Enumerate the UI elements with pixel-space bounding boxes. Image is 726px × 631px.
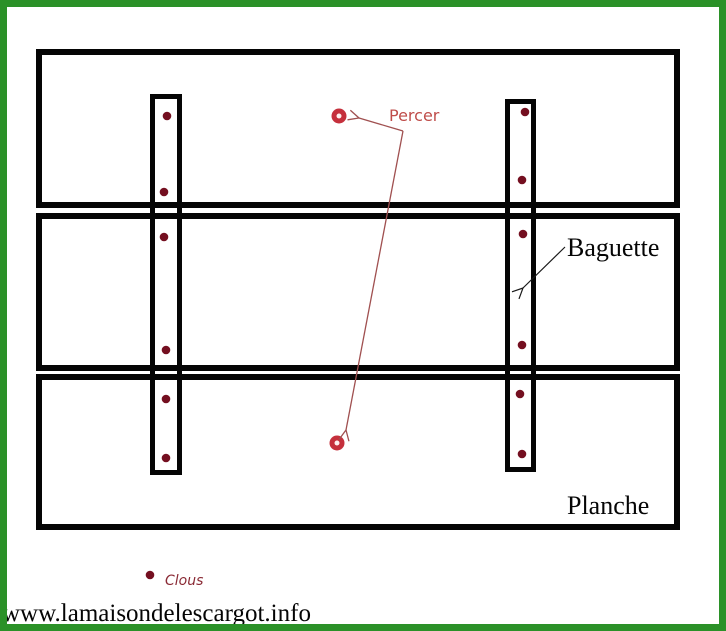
planche-label: Planche bbox=[567, 491, 649, 520]
nail-dot bbox=[146, 571, 155, 580]
percer-label: Percer bbox=[389, 106, 440, 125]
nail-dot bbox=[518, 450, 527, 459]
nail-dot bbox=[162, 395, 171, 404]
green-frame bbox=[4, 4, 723, 628]
drill-hole-center bbox=[337, 114, 342, 119]
percer-arrows bbox=[346, 118, 403, 430]
nail-dot bbox=[521, 108, 530, 117]
diagram-canvas: Percer Baguette Planche Clous www.lamais… bbox=[0, 0, 726, 631]
drill-holes bbox=[330, 109, 347, 451]
baguette-label: Baguette bbox=[567, 233, 659, 262]
nail-dot bbox=[516, 390, 525, 399]
clous-label: Clous bbox=[165, 573, 203, 589]
nail-dot bbox=[162, 454, 171, 463]
nail-dot bbox=[519, 230, 528, 239]
nail-dot bbox=[163, 112, 172, 121]
nail-dot bbox=[160, 233, 169, 242]
baguette-arrow bbox=[523, 247, 565, 288]
plank-top bbox=[39, 52, 677, 205]
watermark-text: www.lamaisondelescargot.info bbox=[2, 600, 311, 627]
nail-dot bbox=[160, 188, 169, 197]
baguette-right bbox=[508, 102, 534, 470]
baguette-left bbox=[153, 97, 180, 473]
nail-dot bbox=[518, 176, 527, 185]
percer-arrow-lower bbox=[346, 131, 403, 430]
nail-dot bbox=[518, 341, 527, 350]
planks bbox=[39, 52, 677, 527]
nail-dot bbox=[162, 346, 171, 355]
nail-dots bbox=[146, 108, 530, 580]
drill-hole-center bbox=[335, 441, 340, 446]
baguettes bbox=[153, 97, 534, 473]
assembly-diagram: Percer Baguette Planche Clous www.lamais… bbox=[0, 0, 726, 631]
